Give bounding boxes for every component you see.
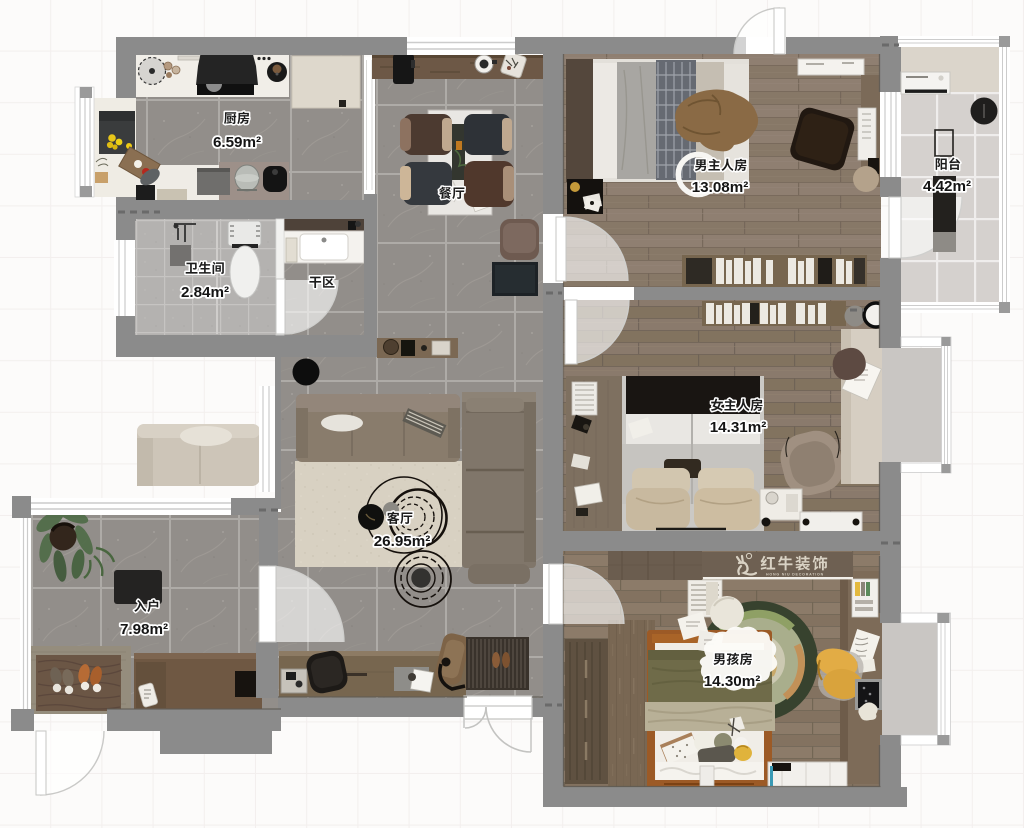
svg-text:2.84m²: 2.84m² [181, 284, 229, 301]
svg-text:6.59m²: 6.59m² [213, 134, 261, 151]
svg-text:7.98m²: 7.98m² [120, 621, 168, 638]
svg-text:HONG NIU DECORATION: HONG NIU DECORATION [766, 573, 824, 577]
svg-text:4.42m²: 4.42m² [923, 178, 971, 195]
svg-text:14.31m²: 14.31m² [710, 419, 767, 436]
svg-text:14.30m²: 14.30m² [704, 673, 761, 690]
svg-text:13.08m²: 13.08m² [692, 179, 749, 196]
svg-text:26.95m²: 26.95m² [374, 533, 431, 550]
